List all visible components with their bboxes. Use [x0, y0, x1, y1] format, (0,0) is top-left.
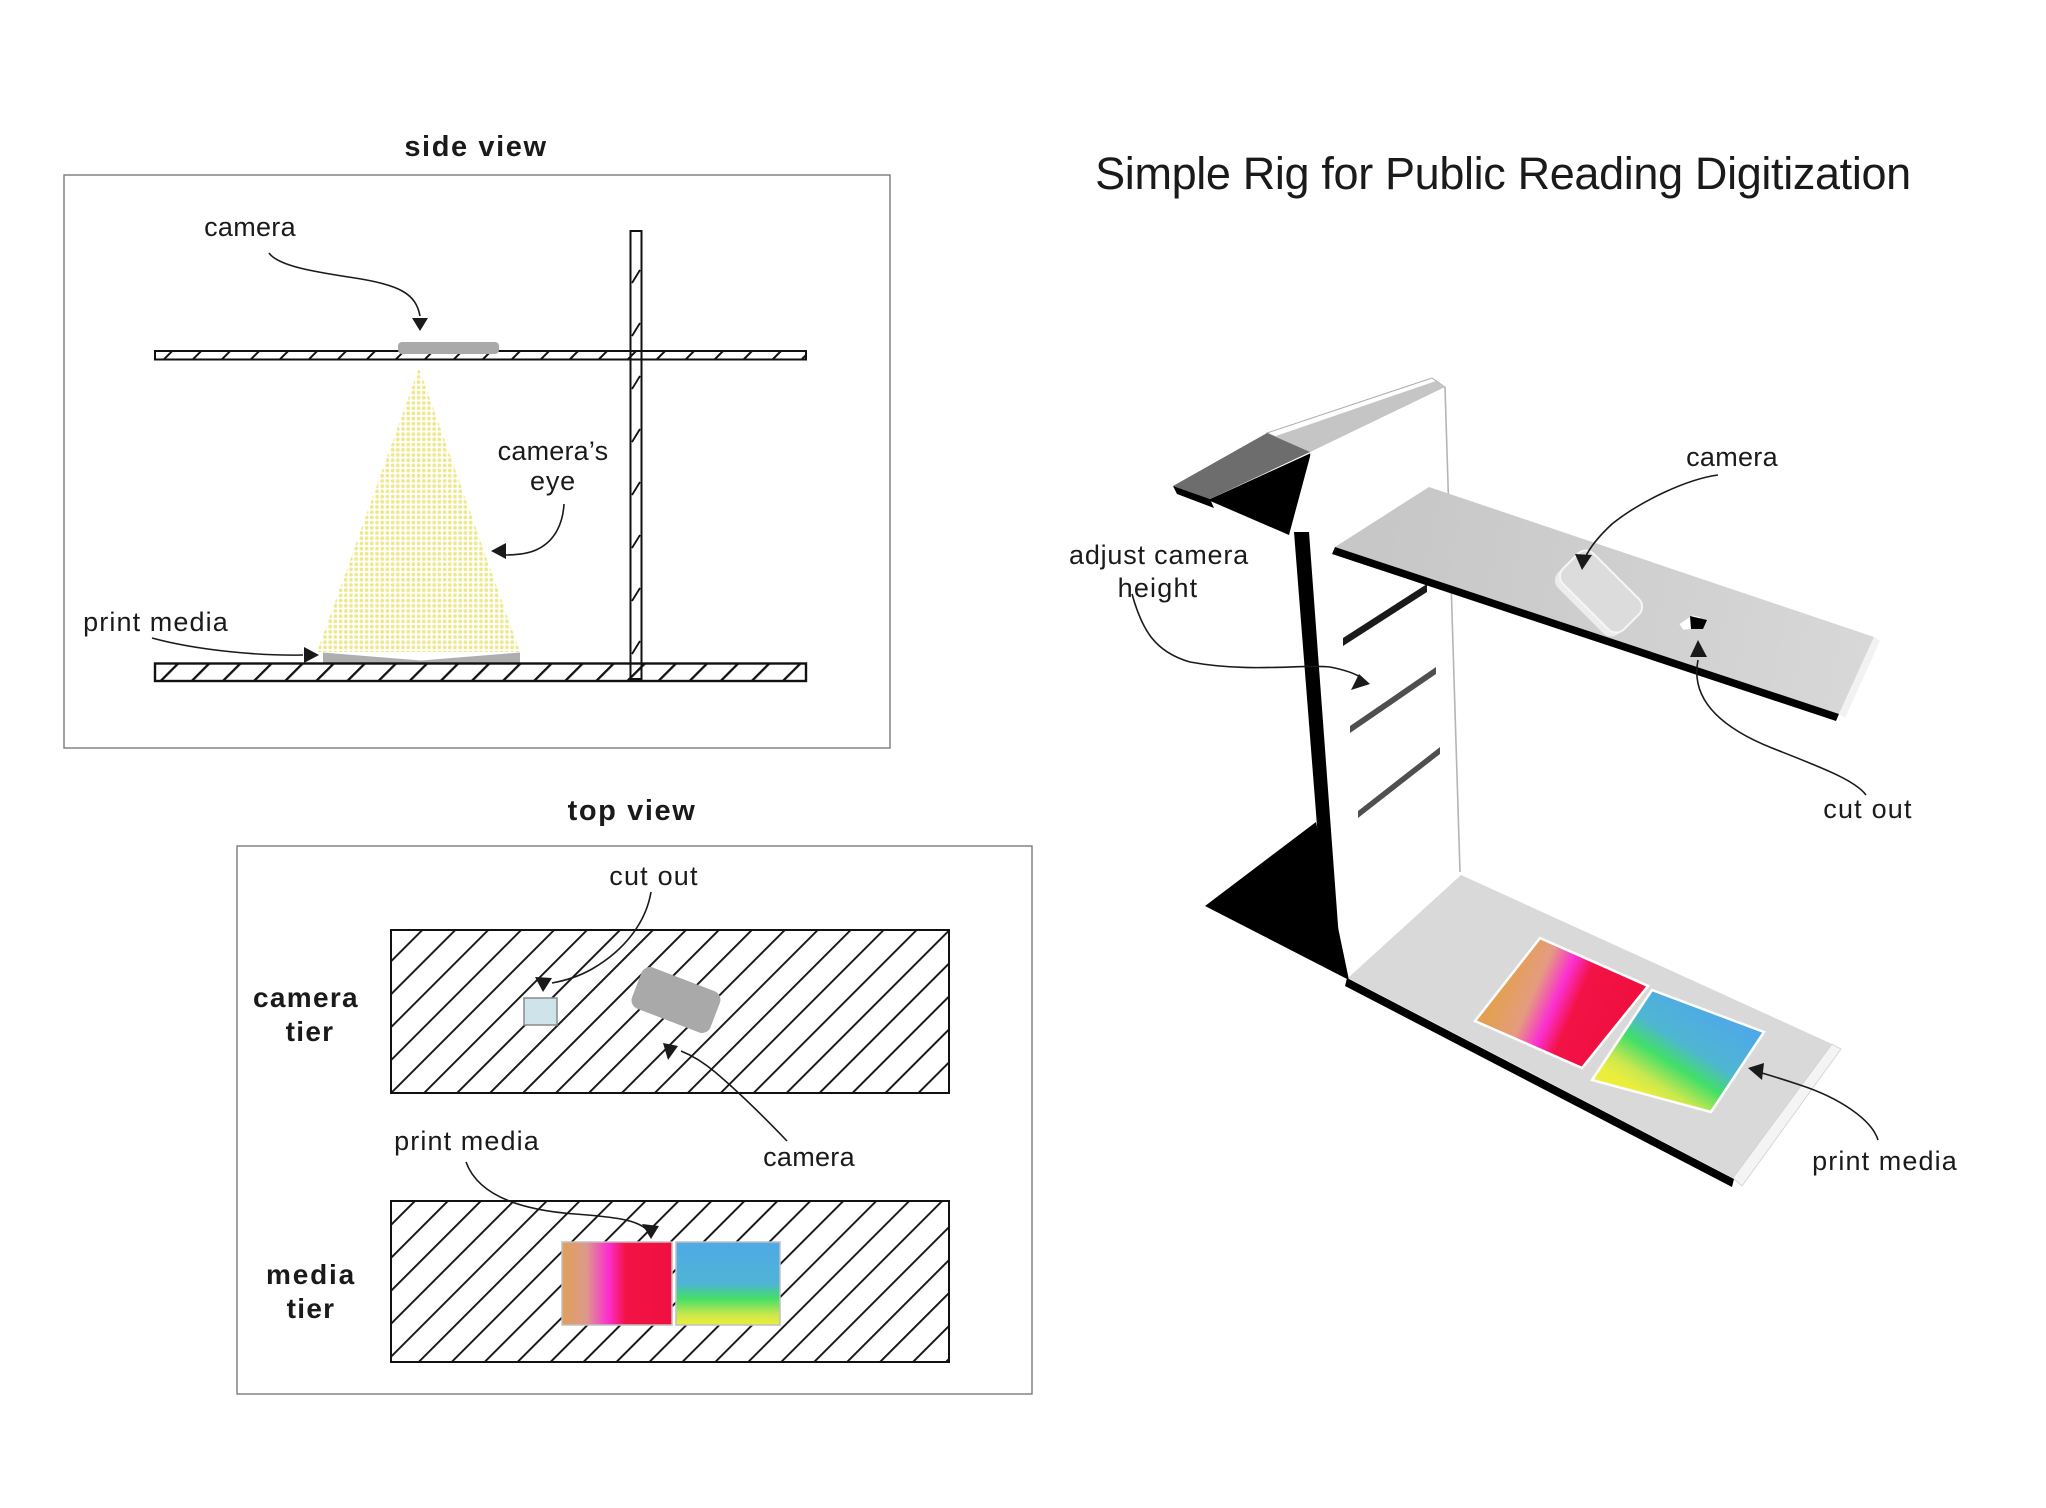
- svg-text:camera: camera: [253, 982, 359, 1013]
- svg-text:adjust camera: adjust camera: [1069, 540, 1249, 570]
- svg-text:tier: tier: [286, 1016, 335, 1047]
- svg-text:tier: tier: [287, 1293, 336, 1324]
- svg-text:camera: camera: [204, 212, 297, 242]
- svg-text:print media: print media: [1812, 1146, 1958, 1176]
- svg-text:side view: side view: [404, 131, 547, 163]
- svg-text:Simple Rig for Public Reading: Simple Rig for Public Reading Digitizati…: [1095, 148, 1911, 199]
- svg-text:top view: top view: [568, 795, 697, 827]
- svg-text:cut out: cut out: [1823, 794, 1912, 824]
- svg-text:print media: print media: [83, 607, 229, 637]
- svg-text:height: height: [1118, 573, 1199, 603]
- svg-text:media: media: [266, 1259, 356, 1290]
- svg-text:print media: print media: [394, 1126, 540, 1156]
- svg-text:eye: eye: [530, 466, 576, 496]
- svg-text:cut out: cut out: [609, 861, 698, 891]
- svg-text:camera’s: camera’s: [498, 436, 609, 466]
- svg-text:camera: camera: [763, 1142, 856, 1172]
- svg-text:camera: camera: [1686, 442, 1779, 472]
